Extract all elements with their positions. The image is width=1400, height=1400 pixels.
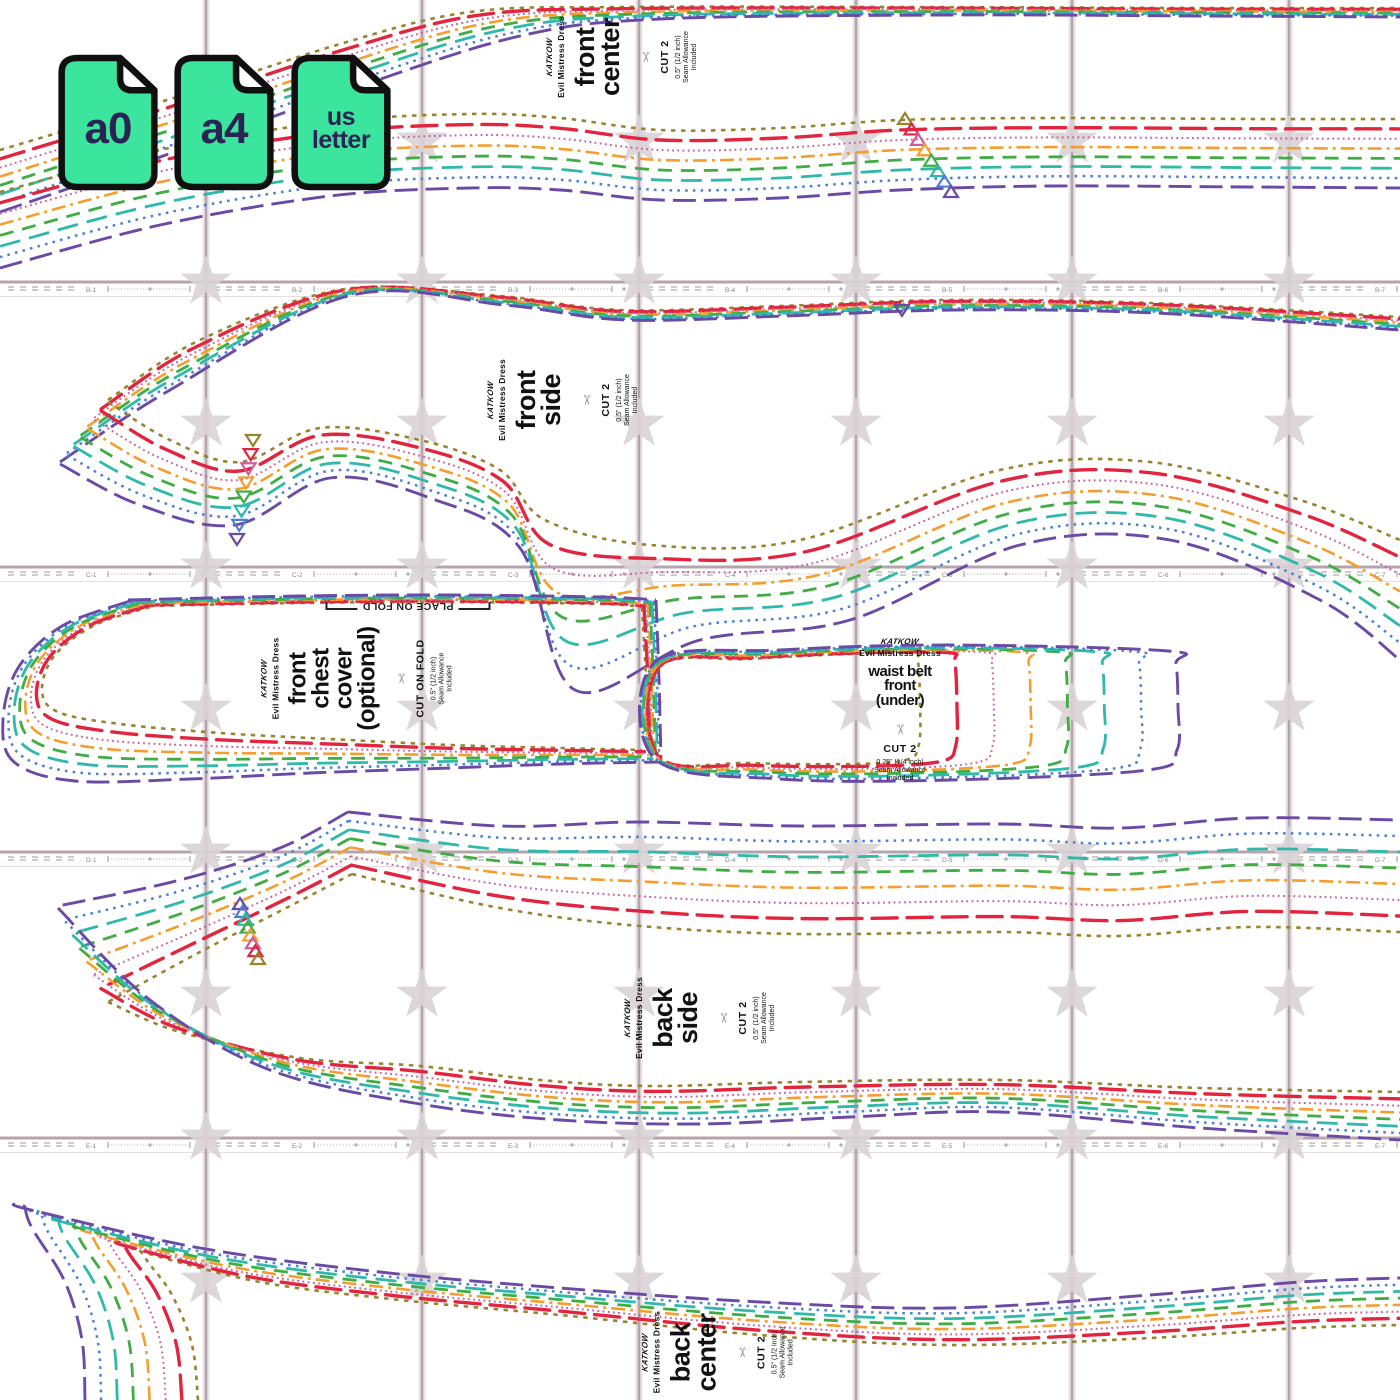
- page-label: B-2: [292, 287, 303, 294]
- place-on-fold-marker: PLACE ON FOLD: [326, 600, 491, 612]
- page-label: B-7: [1375, 287, 1386, 294]
- fold-bracket-right: [326, 602, 358, 610]
- paper-size-badge-a4: a4: [173, 54, 275, 191]
- size-line-size-olive: [352, 874, 1400, 936]
- page-label: E-1: [86, 1143, 97, 1150]
- page-label: D-1: [86, 857, 97, 864]
- badge-label: a4: [173, 84, 275, 174]
- notch-mark-size-olive: [246, 435, 260, 446]
- size-line-size-pink: [646, 651, 995, 769]
- size-line-size-olive: [132, 1248, 1400, 1400]
- size-line-size-teal: [74, 446, 1400, 645]
- paper-size-badge-us-letter: us letter: [290, 54, 392, 191]
- page-label: E-2: [292, 1143, 303, 1150]
- size-line-size-green: [20, 604, 651, 760]
- size-line-size-teal: [47, 1217, 1400, 1400]
- notch-mark-size-orange: [243, 929, 257, 940]
- size-line-size-green: [81, 289, 1400, 435]
- page-label: E-5: [942, 1143, 953, 1150]
- badge-label: us letter: [290, 84, 392, 174]
- badge-label: a0: [57, 84, 159, 174]
- size-line-size-blue: [67, 455, 1400, 669]
- size-line-size-teal: [642, 648, 1110, 777]
- notch-mark-size-green: [241, 922, 255, 933]
- piece-front-chest-cover: [3, 595, 661, 782]
- size-line-size-red: [101, 865, 352, 988]
- paper-size-badge-a0: a0: [57, 54, 159, 191]
- page-label: D-5: [942, 857, 953, 864]
- page-label: E-3: [508, 1143, 519, 1150]
- page-label: D-4: [725, 857, 736, 864]
- size-line-size-purple: [0, 186, 1400, 268]
- page-label: E-4: [725, 1143, 736, 1150]
- fold-bracket-left: [458, 602, 490, 610]
- size-line-size-purple: [348, 812, 1400, 828]
- page-grid: B-1B-2B-3B-4B-5B-6B-7C-1C-2C-3C-4C-5C-6C…: [0, 0, 1400, 1400]
- notch-mark-size-red: [248, 945, 262, 956]
- size-line-size-pink: [94, 975, 1400, 1106]
- size-line-size-teal: [14, 603, 653, 767]
- notch-mark-size-orange: [239, 477, 253, 488]
- page-label: D-6: [1158, 857, 1169, 864]
- size-line-size-red: [101, 287, 1400, 409]
- fold-text: PLACE ON FOLD: [363, 600, 454, 612]
- size-line-size-blue: [65, 921, 1400, 1133]
- notch-mark-size-purple: [230, 534, 244, 545]
- page-label: E-7: [1375, 1143, 1386, 1150]
- notch-mark-size-olive: [251, 953, 265, 964]
- size-line-size-olive: [108, 287, 1400, 400]
- size-line-size-orange: [87, 962, 1400, 1113]
- page-label: B-6: [1158, 287, 1169, 294]
- size-line-size-red: [351, 865, 1400, 921]
- size-line-size-red: [647, 652, 957, 767]
- pattern-preview: B-1B-2B-3B-4B-5B-6B-7C-1C-2C-3C-4C-5C-6C…: [0, 0, 1400, 1400]
- piece-waist-belt-front-under: [639, 645, 1186, 781]
- page-label: B-1: [86, 287, 97, 294]
- size-line-size-green: [79, 948, 1400, 1119]
- size-line-size-orange: [645, 650, 1034, 772]
- pattern-canvas: B-1B-2B-3B-4B-5B-6B-7C-1C-2C-3C-4C-5C-6C…: [0, 0, 1400, 1400]
- notch-mark-size-pink: [246, 937, 260, 948]
- size-line-size-olive: [649, 652, 921, 765]
- page-label: E-6: [1158, 1143, 1169, 1150]
- page-label: C-3: [508, 572, 519, 579]
- size-line-size-green: [81, 437, 1400, 621]
- page-label: D-7: [1375, 857, 1386, 864]
- size-line-size-teal: [72, 935, 1400, 1126]
- piece-front-side: [60, 287, 1400, 693]
- page-label: B-5: [942, 287, 953, 294]
- size-line-size-olive: [108, 1002, 1400, 1092]
- size-line-size-green: [64, 1223, 1400, 1400]
- page-label: C-2: [292, 572, 303, 579]
- notch-mark-size-olive: [898, 113, 912, 124]
- page-label: C-6: [1158, 572, 1169, 579]
- page-label: B-3: [508, 287, 519, 294]
- size-line-size-blue: [8, 602, 655, 774]
- page-label: C-1: [86, 572, 97, 579]
- size-line-size-pink: [94, 856, 351, 974]
- size-line-size-pink: [98, 1236, 1400, 1400]
- page-label: B-4: [725, 287, 736, 294]
